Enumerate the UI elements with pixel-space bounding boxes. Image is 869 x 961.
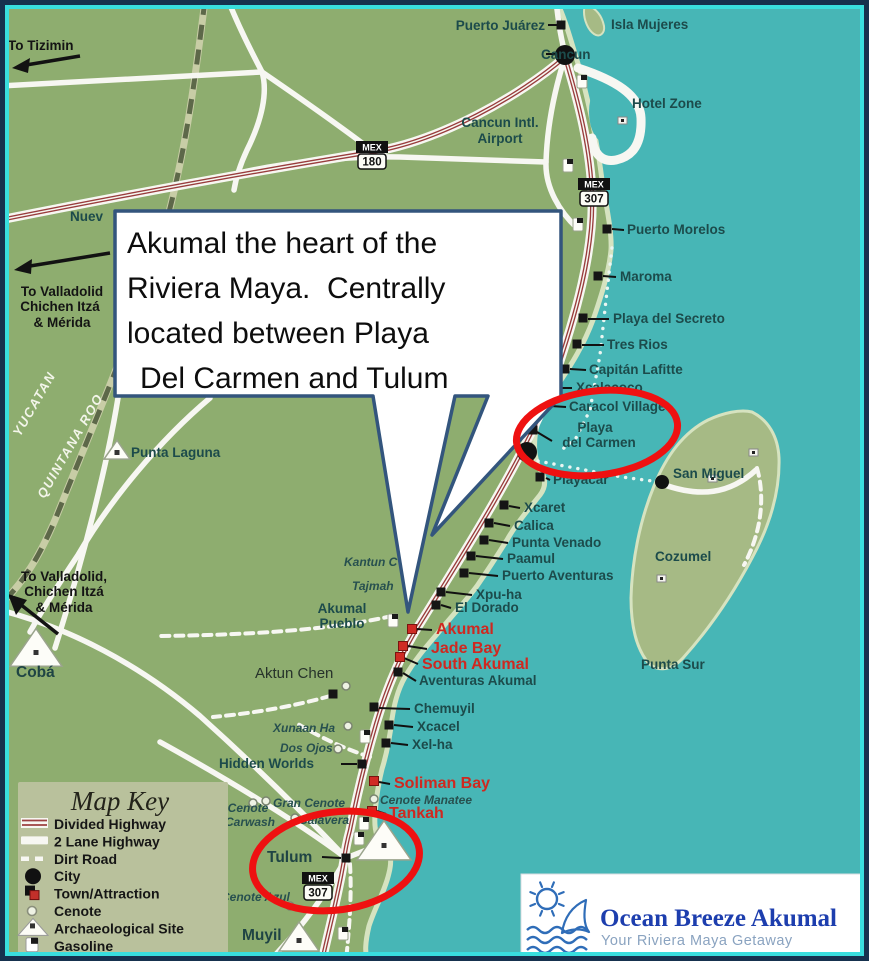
map-screenshot: Puerto JuárezIsla MujeresCancunHotel Zon…: [0, 0, 869, 961]
map-label-playa: Playa: [577, 420, 613, 435]
archaeological-site-door: [382, 843, 387, 848]
leader-line: [379, 708, 410, 709]
map-label-tajmah: Tajmah: [352, 579, 394, 593]
map-label-xcacel: Xcacel: [417, 719, 460, 734]
two-lane-highway-icon: [21, 836, 48, 844]
archaeological-site-icon: [30, 923, 35, 928]
callout-line-1: Akumal the heart of the: [127, 227, 437, 260]
archaeological-site-door: [115, 450, 120, 455]
map-label-aktun-chen: Aktun Chen: [255, 665, 333, 682]
map-label-cozumel: Cozumel: [655, 549, 711, 564]
map-label-cancun: Cancun: [541, 47, 591, 62]
gasoline-marker-top: [342, 927, 348, 932]
gasoline-icon: [31, 938, 38, 944]
archaeological-site-door: [297, 938, 302, 943]
town-marker: [358, 760, 367, 769]
key-item-label-gasoline: Gasoline: [54, 938, 113, 954]
map-label-nuev: Nuev: [70, 209, 104, 224]
archaeological-site-door: [34, 650, 39, 655]
leader-line: [417, 629, 432, 630]
town-marker: [467, 552, 476, 561]
shield-system: MEX: [584, 180, 604, 190]
town-marker: [394, 668, 403, 677]
callout-line-4: Del Carmen and Tulum: [140, 362, 448, 395]
cenote-marker: [344, 722, 352, 730]
divided-highway-icon: [21, 818, 48, 828]
town-marker: [370, 703, 379, 712]
town-marker: [485, 519, 494, 528]
map-label-maroma: Maroma: [620, 269, 672, 284]
map-label-punta-laguna: Punta Laguna: [131, 445, 221, 460]
town-marker: [557, 21, 566, 30]
building-marker-dot: [621, 119, 624, 122]
map-label-punta-sur: Punta Sur: [641, 657, 706, 672]
map-label-xcaret: Xcaret: [524, 500, 566, 515]
key-item-label-dirt-road: Dirt Road: [54, 851, 117, 867]
map-label-m-rida: & Mérida: [35, 600, 93, 615]
gasoline-marker-top: [364, 730, 370, 735]
cenote-marker: [342, 682, 350, 690]
leader-line: [612, 229, 624, 230]
map-label-aventuras-akumal: Aventuras Akumal: [419, 673, 537, 688]
map-label-punta-venado: Punta Venado: [512, 535, 601, 550]
leader-line: [570, 369, 586, 370]
town-marker: [385, 721, 394, 730]
town-marker: [536, 473, 545, 482]
town-marker: [480, 536, 489, 545]
logo-title: Ocean Breeze Akumal: [600, 905, 837, 932]
map-label-tulum: Tulum: [267, 849, 312, 866]
gasoline-marker-top: [363, 817, 369, 822]
cenote-icon: [28, 907, 37, 916]
shield-number: 180: [362, 157, 381, 169]
shield-number: 307: [584, 194, 603, 206]
town-marker: [329, 690, 338, 699]
map-label-cenote: Cenote: [228, 801, 269, 815]
town-marker: [573, 340, 582, 349]
gasoline-marker-top: [392, 614, 398, 619]
town-marker: [342, 854, 351, 863]
map-label-south-akumal: South Akumal: [422, 656, 529, 673]
map-label-chichen-itz: Chichen Itzá: [20, 299, 100, 314]
map-label-puerto-ju-rez: Puerto Juárez: [456, 18, 546, 33]
map-key-title: Map Key: [70, 786, 169, 816]
highway-shield-307: MEX307: [302, 872, 334, 900]
key-item-label-archaeological-site: Archaeological Site: [54, 920, 184, 936]
map-label-to-valladolid: To Valladolid,: [21, 569, 107, 584]
shield-system: MEX: [308, 874, 328, 884]
map-label-tres-rios: Tres Rios: [607, 337, 668, 352]
map-label-gran-cenote: Gran Cenote: [273, 796, 345, 810]
map-label-puerto-morelos: Puerto Morelos: [627, 222, 725, 237]
map-label-dos-ojos: Dos Ojos: [280, 741, 333, 755]
key-item-label-city: City: [54, 868, 81, 884]
highway-shield-180: MEX180: [356, 141, 388, 169]
attraction-marker: [370, 777, 379, 786]
map-label-muyil: Muyil: [242, 927, 282, 944]
attraction-marker: [396, 653, 405, 662]
map-label-to-tizimin: To Tizimin: [8, 38, 74, 53]
gasoline-marker-top: [581, 75, 587, 80]
map-label-carwash: Carwash: [225, 815, 275, 829]
town-marker: [437, 588, 446, 597]
map-label-del-carmen: del Carmen: [562, 435, 636, 450]
callout-line-2: Riviera Maya. Centrally: [127, 272, 445, 305]
gasoline-marker-top: [358, 832, 364, 837]
gasoline-marker-top: [577, 218, 583, 223]
logo-subtitle: Your Riviera Maya Getaway: [601, 933, 793, 949]
cenote-marker: [370, 795, 378, 803]
map-label-akumal: Akumal: [318, 601, 367, 616]
map-label-puerto-aventuras: Puerto Aventuras: [502, 568, 614, 583]
building-marker-dot: [660, 577, 663, 580]
leader-line: [322, 857, 341, 858]
callout-line-3: located between Playa: [127, 317, 429, 350]
logo: Ocean Breeze Akumal Your Riviera Maya Ge…: [521, 874, 864, 956]
map-label-soliman-bay: Soliman Bay: [394, 775, 490, 792]
map-label-el-dorado: El Dorado: [455, 600, 519, 615]
town-marker: [432, 601, 441, 610]
map-label-cancun-intl: Cancun Intl.: [461, 115, 538, 130]
map-label-playa-del-secreto: Playa del Secreto: [613, 311, 725, 326]
map-canvas: Puerto JuárezIsla MujeresCancunHotel Zon…: [0, 0, 869, 961]
map-label-chemuyil: Chemuyil: [414, 701, 475, 716]
map-label-xel-ha: Xel-ha: [412, 737, 453, 752]
map-label-xunaan-ha: Xunaan Ha: [272, 721, 335, 735]
map-label-calica: Calica: [514, 518, 554, 533]
building-marker-dot: [752, 451, 755, 454]
map-key: Map Key Divided Highway2 Lane HighwayDir…: [18, 782, 228, 955]
town-marker: [579, 314, 588, 323]
leader-line: [603, 276, 616, 277]
map-label-pueblo: Pueblo: [319, 616, 364, 631]
map-label-m-rida: & Mérida: [33, 315, 91, 330]
map-label-isla-mujeres: Isla Mujeres: [611, 17, 688, 32]
attraction-marker: [408, 625, 417, 634]
key-item-label-2-lane-highway: 2 Lane Highway: [54, 833, 160, 849]
key-item-label-town-attraction: Town/Attraction: [54, 886, 160, 902]
map-label-jade-bay: Jade Bay: [431, 640, 501, 657]
map-label-airport: Airport: [478, 131, 524, 146]
map-label-caracol-village: Caracol Village: [569, 399, 666, 414]
key-item-label-cenote: Cenote: [54, 903, 102, 919]
city-icon: [25, 868, 41, 884]
town-marker: [594, 272, 603, 281]
town-marker: [382, 739, 391, 748]
map-label-chichen-itz: Chichen Itzá: [24, 584, 104, 599]
attraction-icon: [30, 891, 39, 900]
gasoline-marker-top: [567, 159, 573, 164]
map-label-san-miguel: San Miguel: [673, 466, 744, 481]
key-item-label-divided-highway: Divided Highway: [54, 816, 166, 832]
map-label-hidden-worlds: Hidden Worlds: [219, 756, 314, 771]
attraction-marker: [399, 642, 408, 651]
map-label-akumal: Akumal: [436, 621, 494, 638]
map-label-capit-n-lafitte: Capitán Lafitte: [589, 362, 683, 377]
town-marker: [603, 225, 612, 234]
map-label-paamul: Paamul: [507, 551, 555, 566]
map-label-to-valladolid: To Valladolid: [21, 284, 103, 299]
highway-shield-307: MEX307: [578, 178, 610, 206]
shield-number: 307: [308, 888, 327, 900]
map-label-hotel-zone: Hotel Zone: [632, 96, 702, 111]
map-label-cob: Cobá: [16, 664, 55, 681]
city-marker: [655, 475, 669, 489]
shield-system: MEX: [362, 143, 382, 153]
town-marker: [500, 501, 509, 510]
map-label-kantun-c: Kantun C: [344, 555, 398, 569]
cenote-marker: [334, 745, 342, 753]
town-marker: [460, 569, 469, 578]
